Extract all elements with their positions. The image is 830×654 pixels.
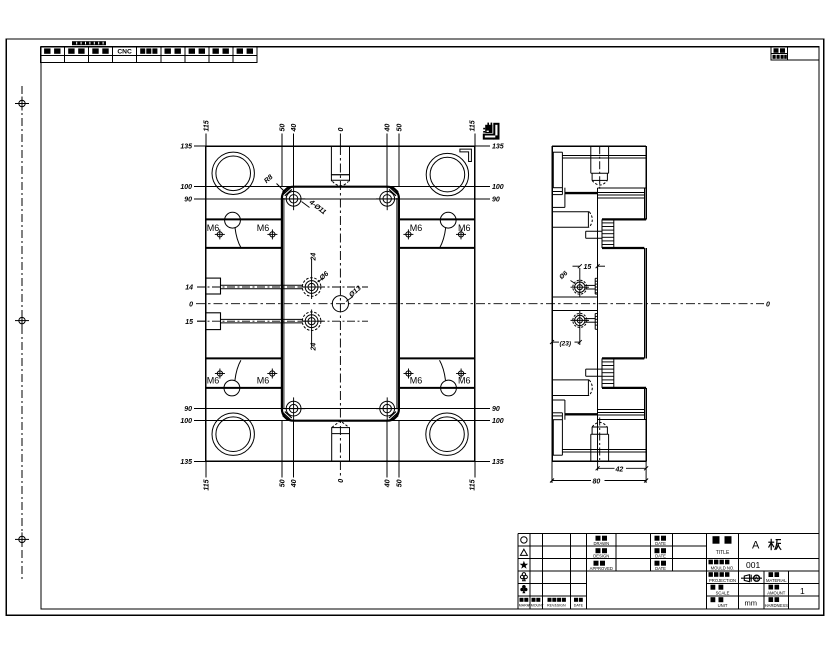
svg-text:HARDNESS: HARDNESS [765,603,788,608]
svg-text:40: 40 [291,124,298,133]
svg-text:DATE: DATE [655,554,666,559]
svg-text:CNC: CNC [117,49,132,56]
svg-text:REV&SIGN: REV&SIGN [547,604,566,608]
svg-text:50: 50 [279,124,286,132]
svg-text:DATE: DATE [655,541,666,546]
svg-text:mm: mm [745,599,758,608]
svg-text:MOULD NO.: MOULD NO. [711,565,735,570]
svg-text:15: 15 [185,319,193,326]
svg-text:24: 24 [311,343,318,352]
svg-text:M6: M6 [410,223,423,233]
svg-text:DATE: DATE [655,566,666,571]
svg-text:100: 100 [492,184,504,191]
svg-text:APPROVED: APPROVED [590,566,613,571]
svg-text:SCALE: SCALE [716,591,730,596]
svg-text:MATERIAL: MATERIAL [766,578,787,583]
svg-text:115: 115 [470,120,477,131]
svg-text:M6: M6 [458,223,471,233]
svg-text:90: 90 [184,196,192,203]
svg-text:115: 115 [203,120,210,131]
svg-text:0: 0 [338,128,345,132]
svg-text:0: 0 [766,301,770,308]
svg-text:135: 135 [492,459,504,466]
svg-text:M6: M6 [207,376,220,386]
svg-text:(23): (23) [560,340,572,347]
svg-text:90: 90 [492,196,500,203]
svg-text:A: A [752,540,760,552]
svg-text:80: 80 [593,479,601,486]
svg-text:UNIT: UNIT [718,603,728,608]
svg-text:135: 135 [180,459,192,466]
svg-text:135: 135 [492,144,504,151]
svg-text:115: 115 [203,479,210,490]
svg-text:90: 90 [184,406,192,413]
svg-text:DESIGN: DESIGN [593,554,609,559]
svg-text:50: 50 [396,124,403,132]
svg-text:135: 135 [180,144,192,151]
svg-text:DRAWN: DRAWN [593,541,609,546]
svg-text:15: 15 [584,264,592,271]
svg-text:14: 14 [185,285,193,292]
svg-text:AMOUNT: AMOUNT [528,604,544,608]
svg-text:40: 40 [291,479,298,488]
svg-text:001: 001 [746,560,760,570]
svg-text:PROJECTION: PROJECTION [709,578,736,583]
svg-text:M6: M6 [207,223,220,233]
svg-text:24: 24 [311,253,318,262]
svg-text:TITLE: TITLE [716,550,730,556]
svg-text:AMOUNT: AMOUNT [767,591,786,596]
svg-text:0: 0 [189,301,193,308]
svg-text:50: 50 [396,479,403,487]
svg-text:M6: M6 [257,376,270,386]
svg-text:100: 100 [180,418,192,425]
svg-text:50: 50 [279,479,286,487]
svg-text:40: 40 [385,479,392,488]
svg-text:100: 100 [492,418,504,425]
svg-text:M6: M6 [458,376,471,386]
svg-text:M6: M6 [410,376,423,386]
svg-text:DATE: DATE [574,604,584,608]
svg-text:40: 40 [385,124,392,133]
svg-text:1: 1 [800,586,805,596]
svg-text:0: 0 [338,479,345,483]
svg-text:M6: M6 [257,223,270,233]
svg-text:115: 115 [470,479,477,490]
svg-text:100: 100 [180,184,192,191]
svg-text:90: 90 [492,406,500,413]
svg-text:42: 42 [615,466,624,473]
